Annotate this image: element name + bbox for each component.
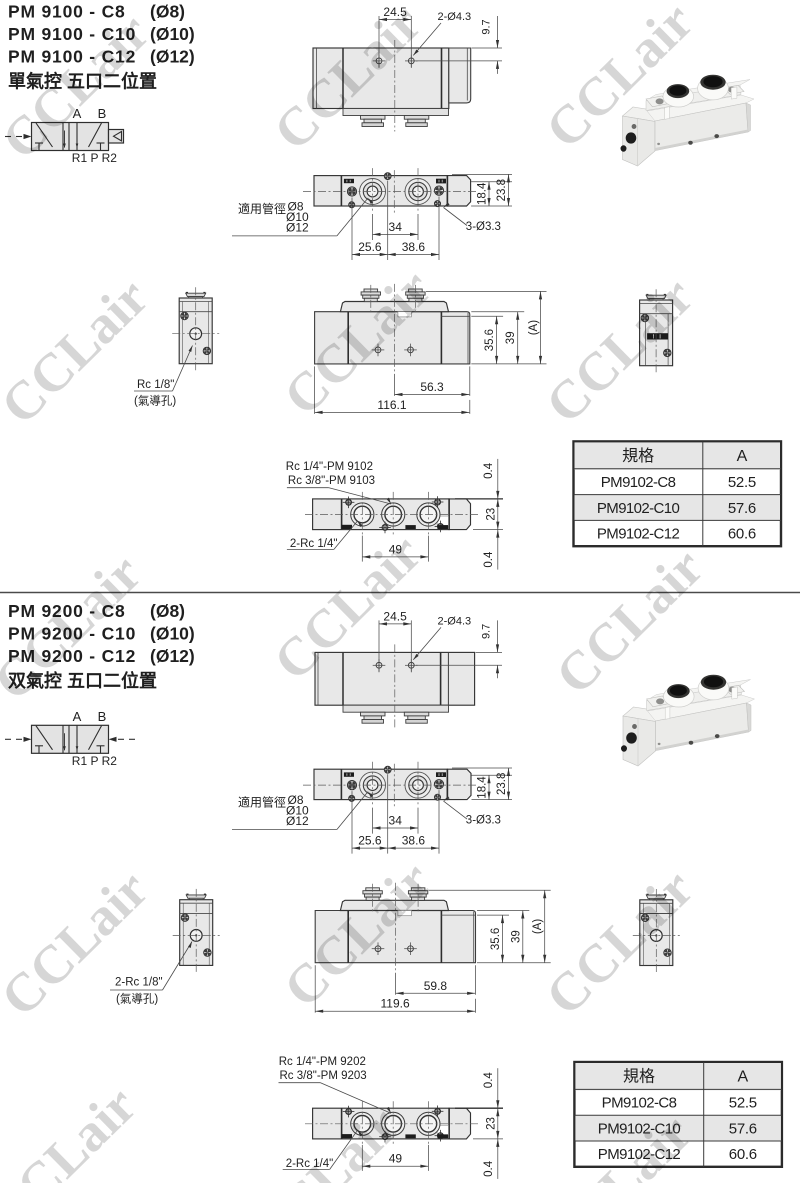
svg-text:18.4: 18.4 [477, 182, 489, 205]
svg-text:適用管徑: 適用管徑 [238, 201, 286, 216]
svg-text:(Ø8): (Ø8) [150, 601, 185, 621]
svg-text:2-Rc 1/8": 2-Rc 1/8" [115, 977, 163, 989]
svg-text:0.4: 0.4 [483, 1072, 495, 1089]
svg-text:PM9102-C12: PM9102-C12 [597, 526, 680, 543]
svg-text:39: 39 [505, 331, 517, 344]
svg-text:59.8: 59.8 [424, 979, 448, 993]
svg-text:PM9102-C8: PM9102-C8 [601, 474, 676, 491]
svg-text:52.5: 52.5 [728, 474, 756, 491]
svg-text:57.6: 57.6 [729, 1120, 757, 1137]
svg-text:Rc 1/4"-PM 9202: Rc 1/4"-PM 9202 [279, 1056, 366, 1068]
svg-text:R1 P R2: R1 P R2 [72, 754, 117, 768]
svg-text:規格: 規格 [622, 447, 654, 465]
svg-text:119.6: 119.6 [381, 997, 410, 1011]
svg-text:34: 34 [389, 220, 403, 234]
svg-text:0.4: 0.4 [483, 1160, 495, 1177]
svg-text:3-Ø3.3: 3-Ø3.3 [466, 815, 501, 827]
svg-text:PM9102-C10: PM9102-C10 [597, 500, 680, 517]
svg-text:24.5: 24.5 [383, 610, 407, 624]
svg-text:116.1: 116.1 [377, 398, 406, 412]
svg-text:(Ø12): (Ø12) [150, 646, 195, 666]
svg-text:3-Ø3.3: 3-Ø3.3 [466, 221, 501, 233]
svg-text:23.8: 23.8 [496, 179, 508, 201]
svg-text:R1 P R2: R1 P R2 [72, 151, 117, 165]
svg-text:(A): (A) [532, 919, 544, 935]
svg-text:(Ø10): (Ø10) [150, 623, 195, 643]
svg-text:52.5: 52.5 [729, 1095, 757, 1112]
svg-text:9.7: 9.7 [481, 19, 493, 34]
svg-text:18.4: 18.4 [477, 776, 489, 799]
svg-text:(Ø12): (Ø12) [150, 46, 195, 66]
svg-text:B: B [98, 709, 107, 724]
svg-text:0.4: 0.4 [483, 551, 495, 568]
svg-text:57.6: 57.6 [728, 500, 756, 517]
svg-text:9.7: 9.7 [481, 624, 493, 639]
svg-text:A: A [737, 1069, 748, 1086]
svg-text:56.3: 56.3 [420, 380, 444, 394]
svg-text:2-Ø4.3: 2-Ø4.3 [438, 11, 472, 23]
svg-text:23: 23 [485, 508, 497, 521]
svg-text:(氣導孔): (氣導孔) [116, 992, 158, 1006]
svg-text:23: 23 [485, 1117, 497, 1130]
svg-text:38.6: 38.6 [402, 834, 426, 848]
svg-text:2-Ø4.3: 2-Ø4.3 [438, 615, 472, 627]
svg-text:規格: 規格 [623, 1068, 655, 1086]
svg-text:適用管徑: 適用管徑 [238, 795, 286, 810]
svg-text:(A): (A) [528, 320, 540, 336]
svg-text:38.6: 38.6 [402, 240, 426, 254]
svg-text:0.4: 0.4 [483, 462, 495, 479]
svg-text:Rc 3/8"-PM 9203: Rc 3/8"-PM 9203 [280, 1070, 367, 1082]
svg-text:(Ø8): (Ø8) [150, 2, 185, 22]
svg-text:35.6: 35.6 [484, 329, 496, 351]
svg-text:35.6: 35.6 [490, 928, 502, 950]
svg-text:Rc 1/4"-PM 9102: Rc 1/4"-PM 9102 [286, 461, 373, 473]
svg-text:39: 39 [510, 930, 522, 943]
svg-text:60.6: 60.6 [729, 1146, 757, 1163]
svg-text:Rc 3/8"-PM 9103: Rc 3/8"-PM 9103 [288, 475, 375, 487]
svg-text:Ø12: Ø12 [286, 221, 309, 235]
svg-text:Ø12: Ø12 [286, 814, 309, 828]
svg-text:25.6: 25.6 [358, 240, 382, 254]
svg-text:A: A [73, 709, 82, 724]
svg-text:B: B [98, 106, 107, 121]
svg-text:60.6: 60.6 [728, 526, 756, 543]
svg-text:25.6: 25.6 [358, 834, 382, 848]
svg-text:23.8: 23.8 [496, 773, 508, 795]
svg-text:A: A [737, 448, 748, 465]
svg-text:2-Rc 1/4": 2-Rc 1/4" [290, 538, 338, 550]
svg-text:(氣導孔): (氣導孔) [134, 394, 176, 408]
svg-text:34: 34 [389, 814, 403, 828]
svg-text:Rc 1/8": Rc 1/8" [137, 379, 174, 391]
